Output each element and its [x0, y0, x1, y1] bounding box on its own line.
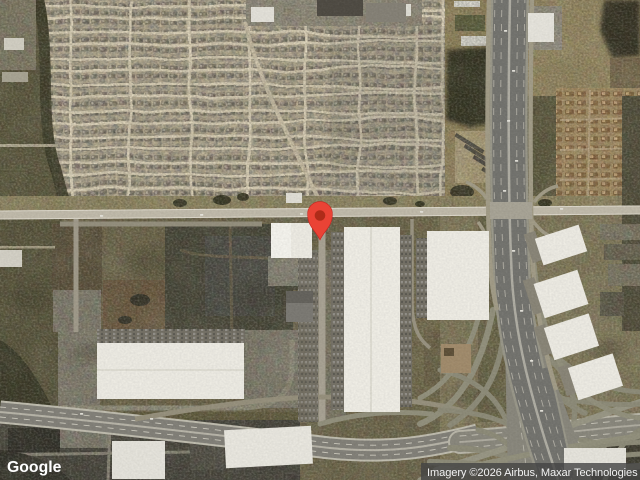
svg-text:Imagery ©2026 Airbus, Maxar Te: Imagery ©2026 Airbus, Maxar Technologies: [427, 467, 638, 479]
svg-text:Google: Google: [7, 459, 62, 476]
